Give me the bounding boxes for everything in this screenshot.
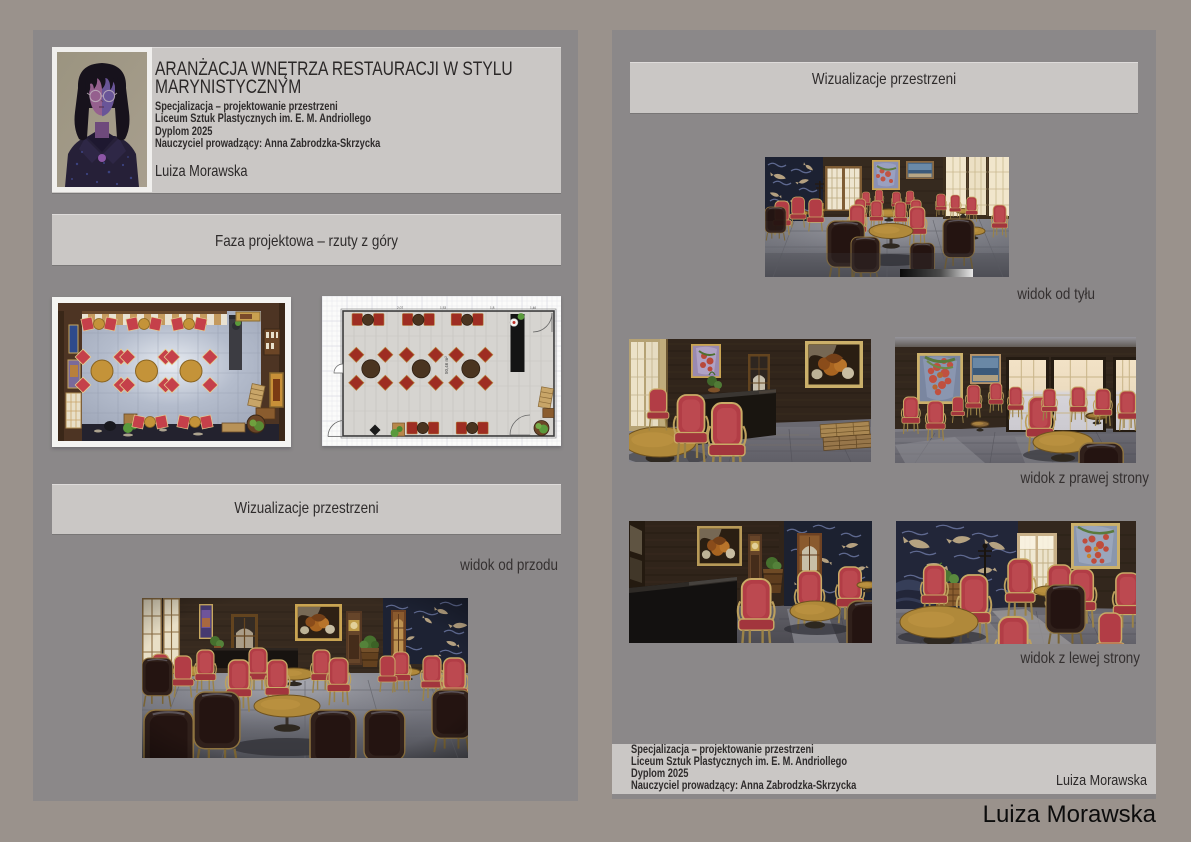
svg-text:1,46: 1,46 [530,306,536,310]
svg-text:2,07: 2,07 [397,306,403,310]
svg-text:50,46 m²: 50,46 m² [444,356,449,374]
svg-text:1,8: 1,8 [490,306,495,310]
svg-text:1,53: 1,53 [440,306,446,310]
